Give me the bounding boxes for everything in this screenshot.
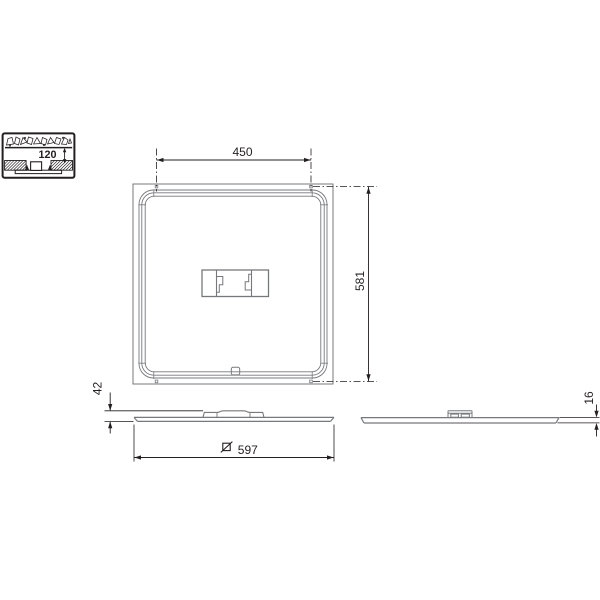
dim-42-label: 42 xyxy=(91,382,105,396)
dim-16: 16 xyxy=(558,391,600,436)
arrow-down-icon xyxy=(366,374,370,381)
dim-450: 450 xyxy=(157,145,312,192)
dim-581: 581 xyxy=(313,187,377,382)
ceiling-structure-hatch xyxy=(7,137,72,146)
mounting-clip-left-icon xyxy=(25,165,29,170)
driver-box-plan xyxy=(202,270,269,297)
connector-tab xyxy=(231,367,239,375)
terminal-box xyxy=(448,411,472,418)
arrow-up-icon xyxy=(63,148,66,152)
suspension-hole xyxy=(155,380,158,383)
front-elevation-view xyxy=(134,411,334,422)
arrow-up-icon xyxy=(594,423,598,430)
dim-597: 597 xyxy=(134,425,334,462)
square-dim-icon xyxy=(221,442,233,453)
suspension-hole xyxy=(310,380,313,383)
recess-depth-dimension: 120 xyxy=(38,148,66,164)
arrow-down-icon xyxy=(108,404,112,411)
side-elevation-view xyxy=(361,411,559,423)
plan-view xyxy=(133,184,333,384)
mounting-clip-right-icon xyxy=(48,165,52,170)
dim-42: 42 xyxy=(91,382,204,434)
recess-depth-label: 120 xyxy=(38,149,56,161)
arrow-right-icon xyxy=(327,455,334,459)
dim-450-label: 450 xyxy=(232,145,252,159)
arrow-up-icon xyxy=(366,187,370,194)
dim-16-label: 16 xyxy=(582,391,596,405)
ceiling-tile-right xyxy=(51,161,73,171)
technical-drawing: 120 xyxy=(0,0,600,600)
ceiling-tile-left xyxy=(5,161,27,171)
arrow-left-icon xyxy=(134,455,141,459)
detail-inset: 120 xyxy=(3,133,75,177)
arrow-down-icon xyxy=(594,411,598,418)
driver-box xyxy=(31,162,42,171)
dim-597-label: 597 xyxy=(238,443,258,457)
dim-581-label: 581 xyxy=(353,271,367,291)
arrow-up-icon xyxy=(108,422,112,429)
arrow-right-icon xyxy=(304,158,311,162)
arrow-left-icon xyxy=(157,158,164,162)
driver-cover-profile xyxy=(203,411,264,418)
